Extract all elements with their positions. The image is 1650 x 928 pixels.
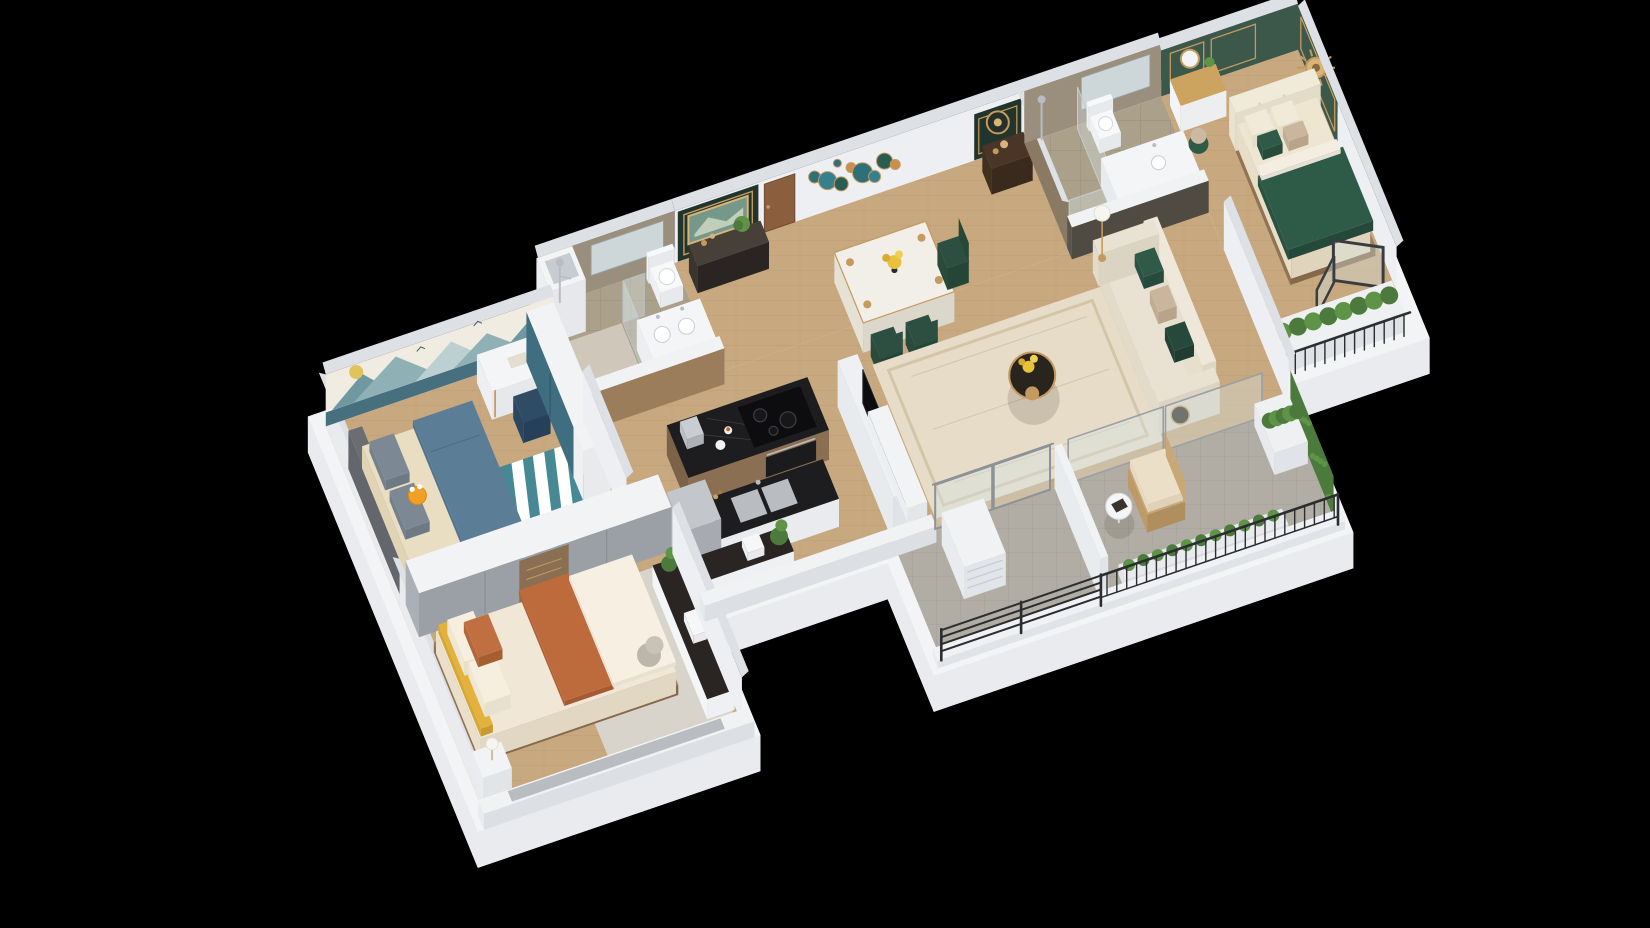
garden-leaf [1306,420,1312,426]
wall-disc-decor [819,172,837,190]
sideboard-plant [775,519,787,531]
cooktop-burner [769,426,778,435]
console-plant [733,220,743,230]
plate [715,440,725,450]
console-vase [701,240,707,246]
porch-round-mirror [994,118,1002,126]
bath1-faucet-icon [680,307,684,311]
porch-decor [1000,140,1008,148]
vanity-plant [1205,57,1215,67]
garden-leaf [1322,461,1328,467]
wall-disc-decor [833,159,841,167]
place-setting [935,276,943,284]
vanity-mirror [1181,50,1199,68]
shower-glass-return [623,273,644,322]
toilet-tank [647,253,649,284]
place-setting [846,258,854,266]
floor-lamp-shade [1094,205,1110,221]
bottle [718,490,722,494]
window-panel [1333,240,1383,287]
owl-eye [417,484,422,489]
wall-disc-decor [869,171,881,183]
yellow-flowers [1030,355,1038,363]
place-setting [918,234,926,242]
floor-lamp-base [1098,254,1106,262]
wall-disc-decor [834,177,848,191]
console-vase [710,234,715,239]
nightstand-lamp [486,738,498,750]
bottle [713,494,718,499]
wall-disc-decor [877,153,893,169]
food [726,427,730,431]
coffee-table-base [1025,386,1039,400]
vanity-stool [1191,128,1207,144]
owl-eye [410,487,415,492]
bath1-basin [654,327,670,343]
mural-sun-icon [349,365,363,379]
bath1-basin [679,318,695,334]
yellow-flowers [895,251,903,259]
yellow-flowers [1018,358,1025,365]
bath2-faucet-icon [1152,143,1156,147]
shower-head-icon [1038,95,1046,103]
planter-hedge [1380,286,1398,304]
bath1-faucet-icon [656,315,660,319]
sink-faucet-icon [756,480,761,485]
bath2-basin [1152,156,1166,170]
entry-door [764,174,794,232]
cooktop-burner [780,412,796,428]
shower-head-icon [556,258,564,266]
hedge [1289,403,1305,419]
floorplan-svg [0,0,1650,928]
tuft-dot [1283,94,1286,97]
tuft-dot [1258,103,1261,106]
door-handle-icon [766,205,770,209]
toilet-seat [1099,117,1113,131]
yellow-flowers [882,254,890,262]
wall-disc-decor [890,160,900,170]
sw-throw [646,636,664,654]
porch-decor [993,148,999,154]
toilet-seat [659,269,675,285]
apartment-floorplan-render [0,0,1650,928]
cooktop-burner [754,409,767,422]
place-setting [863,300,871,308]
